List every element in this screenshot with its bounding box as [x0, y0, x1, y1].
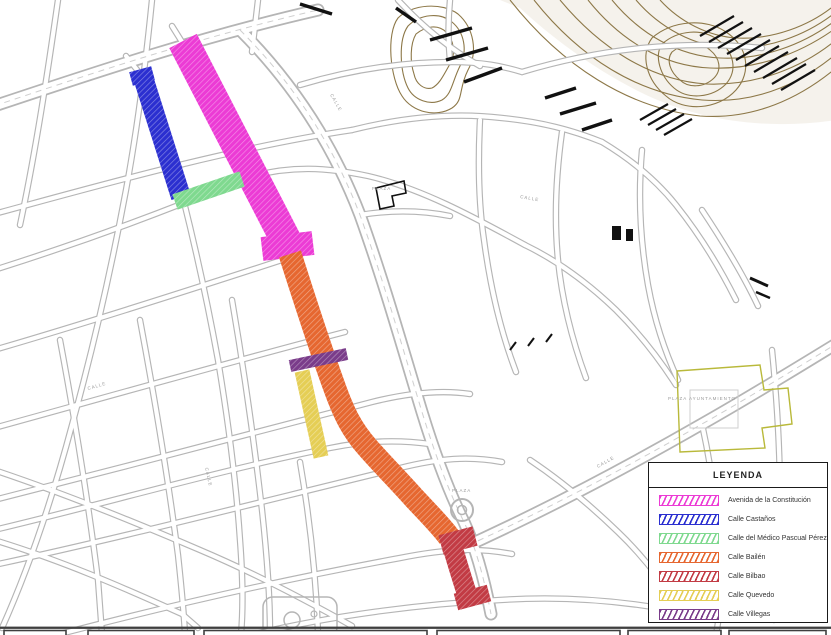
legend-swatch: [659, 571, 719, 582]
map-street-label: CALLE: [329, 93, 343, 112]
legend-swatch: [659, 552, 719, 563]
street-line: [602, 142, 736, 300]
legend-rows: Avenida de la ConstituciónCalle Castaños…: [649, 488, 827, 629]
map-street-label: PLAZA: [372, 186, 391, 191]
legend: LEYENDA Avenida de la ConstituciónCalle …: [648, 462, 828, 623]
legend-swatch: [659, 495, 719, 506]
legend-item: Avenida de la Constitución: [649, 495, 827, 506]
highlighted-street-calle-bilbao: [456, 593, 489, 602]
street-line: [556, 132, 586, 378]
legend-item-label: Calle Bailén: [728, 554, 765, 561]
legend-item: Calle del Médico Pascual Pérez: [649, 533, 827, 544]
legend-item-label: Calle Villegas: [728, 611, 770, 618]
highlighted-street-avenida-constitucion: [262, 243, 313, 249]
legend-swatch: [659, 590, 719, 601]
highlighted-street-calle-castanos: [131, 73, 153, 79]
street-line-fill: [602, 142, 736, 300]
legend-item: Calle Bilbao: [649, 571, 827, 582]
legend-item: Calle Bailén: [649, 552, 827, 563]
legend-item: Calle Villegas: [649, 609, 827, 620]
map-street-label: PLAZA: [452, 488, 471, 493]
street-line-fill: [20, 0, 58, 225]
legend-title: LEYENDA: [649, 463, 827, 488]
plan-sheet: CALLECALLECALLECALLECALLEPLAZAPLAZAPLAZA…: [0, 0, 831, 635]
legend-swatch: [659, 609, 719, 620]
legend-item-label: Calle Bilbao: [728, 573, 765, 580]
highlighted-street-calle-castanos: [142, 74, 181, 197]
legend-item: Calle Quevedo: [649, 590, 827, 601]
map-street-label: CALLE: [520, 194, 540, 202]
highlighted-street-calle-bilbao: [441, 536, 475, 545]
street-line-fill: [183, 198, 242, 634]
street-line-fill: [479, 120, 516, 372]
street-line: [183, 198, 242, 634]
legend-swatch: [659, 514, 719, 525]
legend-item-label: Calle Quevedo: [728, 592, 774, 599]
legend-item: Calle Castaños: [649, 514, 827, 525]
highlighted-street-calle-villegas: [290, 354, 347, 366]
street-line-fill: [449, 0, 451, 62]
legend-item-label: Calle Castaños: [728, 516, 775, 523]
street-line-fill: [0, 332, 345, 428]
legend-item-label: Avenida de la Constitución: [728, 497, 811, 504]
legend-item-label: Calle del Médico Pascual Pérez: [728, 535, 827, 542]
legend-swatch: [659, 533, 719, 544]
map-street-label: PLAZA AYUNTAMIENTO: [668, 396, 736, 401]
highlighted-street-calle-quevedo: [302, 371, 321, 457]
map-street-label: CALLE: [87, 381, 107, 391]
